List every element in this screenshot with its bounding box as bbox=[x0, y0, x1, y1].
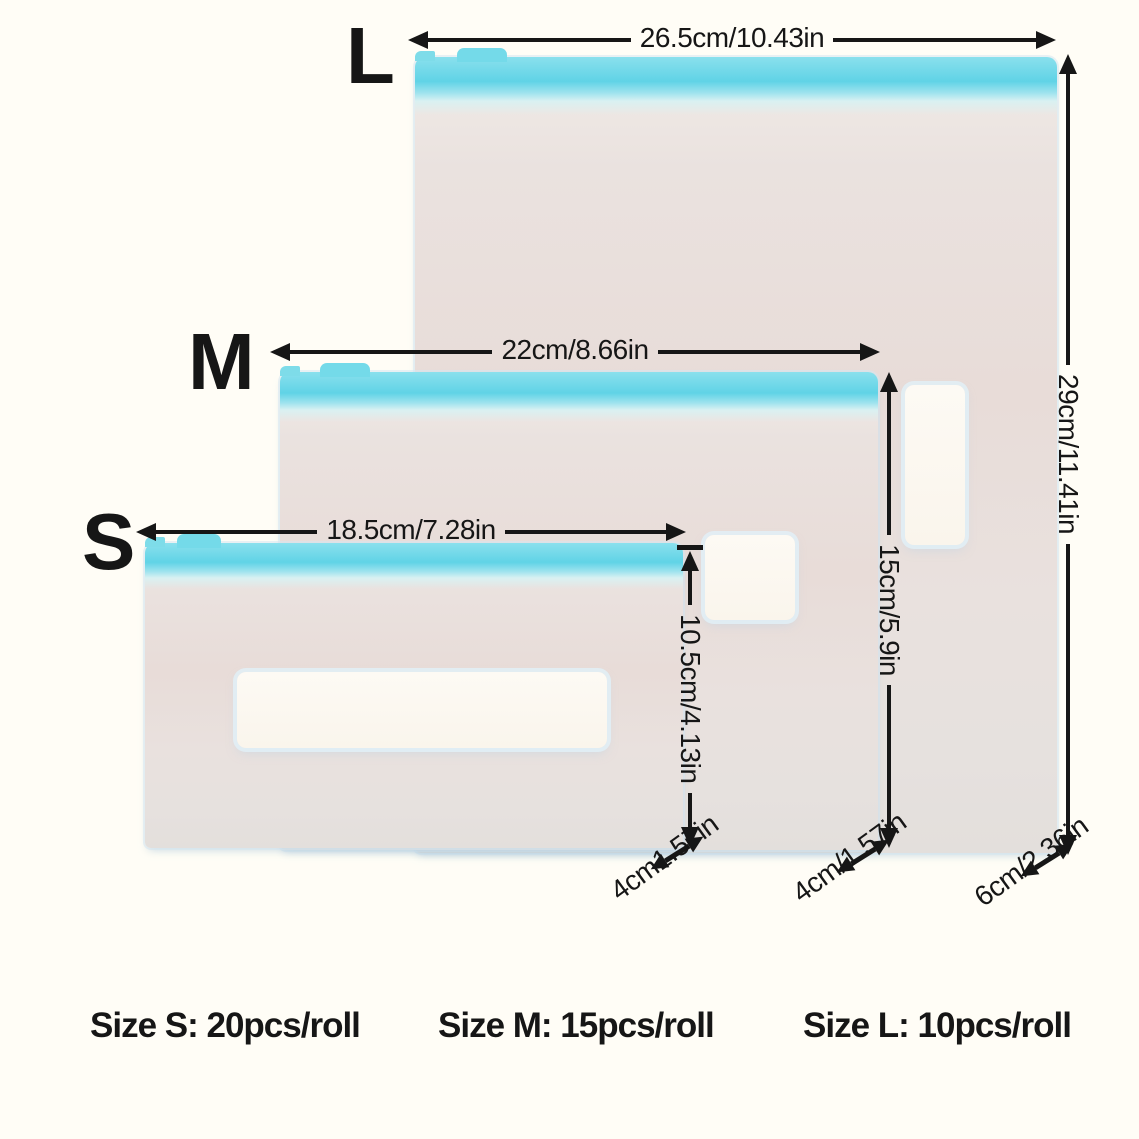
bag-size-s bbox=[145, 543, 683, 848]
height-dimension-s: 10.5cm/4.13in bbox=[674, 545, 706, 847]
arrowhead-left-icon bbox=[270, 343, 290, 361]
height-label-l: 29cm/11.41in bbox=[1052, 365, 1084, 543]
height-label-m: 15cm/5.9in bbox=[873, 535, 905, 685]
pcs-per-roll-m: Size M: 15pcs/roll bbox=[438, 1006, 714, 1046]
arrowhead-left-icon bbox=[136, 523, 156, 541]
arrowhead-up-icon bbox=[880, 372, 898, 392]
zipper-strip-m bbox=[280, 372, 878, 422]
arrowhead-right-icon bbox=[666, 523, 686, 541]
height-dimension-m: 15cm/5.9in bbox=[873, 372, 905, 848]
width-dimension-l: 26.5cm/10.43in bbox=[408, 24, 1056, 56]
size-letter-s: S bbox=[82, 502, 133, 582]
width-label-l: 26.5cm/10.43in bbox=[631, 22, 833, 54]
arrowhead-left-icon bbox=[408, 31, 428, 49]
arrowhead-up-icon bbox=[1059, 54, 1077, 74]
size-letter-l: L bbox=[346, 16, 393, 96]
height-dimension-l: 29cm/11.41in bbox=[1052, 54, 1084, 855]
size-letter-m: M bbox=[188, 322, 253, 402]
height-label-s: 10.5cm/4.13in bbox=[674, 605, 706, 792]
pcs-per-roll-s: Size S: 20pcs/roll bbox=[90, 1006, 360, 1046]
width-dimension-m: 22cm/8.66in bbox=[270, 336, 880, 368]
zipper-strip-s bbox=[145, 543, 683, 589]
arrowhead-right-icon bbox=[860, 343, 880, 361]
width-label-m: 22cm/8.66in bbox=[492, 334, 657, 366]
pcs-per-roll-l: Size L: 10pcs/roll bbox=[803, 1006, 1071, 1046]
width-dimension-s: 18.5cm/7.28in bbox=[136, 516, 686, 548]
arrowhead-right-icon bbox=[1036, 31, 1056, 49]
label-patch-m bbox=[705, 535, 795, 620]
width-label-s: 18.5cm/7.28in bbox=[317, 514, 504, 546]
size-diagram: L M S 26.5cm/10.43in 22cm/8.66in 18.5cm/… bbox=[0, 0, 1139, 1139]
write-on-slot-s bbox=[237, 672, 607, 748]
zipper-strip-l bbox=[415, 57, 1057, 115]
label-patch-l bbox=[905, 385, 965, 545]
arrowhead-up-icon bbox=[681, 551, 699, 571]
dimension-cap bbox=[677, 545, 703, 550]
